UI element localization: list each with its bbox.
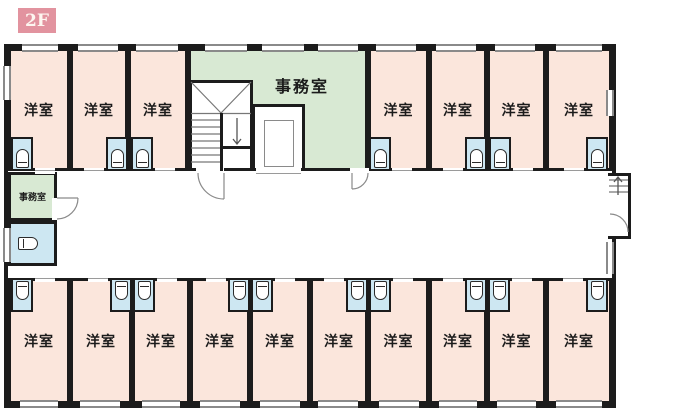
bathroom-unit [586, 278, 608, 312]
toilet-icon [493, 281, 506, 300]
room-label: 洋室 [443, 100, 473, 120]
bathroom-unit [131, 137, 153, 171]
window [3, 66, 11, 100]
toilet-icon [233, 281, 246, 300]
door-opening [35, 168, 55, 174]
door-opening [35, 276, 55, 282]
door-opening [84, 168, 104, 174]
door-opening [324, 276, 344, 282]
door-opening [196, 168, 224, 174]
staircase [189, 80, 253, 171]
toilet-icon [136, 149, 149, 168]
door-opening [275, 276, 295, 282]
window [436, 44, 476, 52]
room-label: 洋室 [384, 100, 414, 120]
door-opening [563, 276, 583, 282]
office-label: 事務室 [275, 73, 329, 97]
toilet-icon [494, 149, 507, 168]
bathroom-unit [11, 137, 33, 171]
window [260, 400, 300, 408]
toilet-icon [111, 149, 124, 168]
door-opening [392, 168, 412, 174]
window [556, 44, 602, 52]
door-opening [513, 168, 533, 174]
door-opening [512, 276, 532, 282]
floor-badge: 2F [18, 8, 56, 33]
toilet-icon [470, 149, 483, 168]
toilet-icon [256, 281, 269, 300]
bathroom-unit [586, 137, 608, 171]
window [20, 400, 58, 408]
window [318, 400, 358, 408]
room-label: 洋室 [384, 331, 414, 351]
door-opening [443, 168, 463, 174]
toilet-icon [138, 281, 151, 300]
window [495, 44, 535, 52]
bathroom-unit [133, 278, 155, 312]
window [318, 44, 358, 52]
toilet-icon [115, 281, 128, 300]
window [78, 44, 118, 52]
window [376, 44, 416, 52]
window [606, 90, 614, 116]
bathroom-unit [488, 278, 510, 312]
small-office-room: 事務室 [8, 172, 57, 221]
window [379, 400, 419, 408]
room-label: 洋室 [564, 100, 594, 120]
elevator [252, 104, 305, 171]
window [200, 400, 240, 408]
room-label: 洋室 [24, 331, 54, 351]
small-office-label: 事務室 [19, 190, 46, 203]
room-label: 洋室 [443, 331, 473, 351]
bathroom-unit [228, 278, 250, 312]
door-opening [443, 276, 463, 282]
bathroom-unit [110, 278, 132, 312]
door-opening [350, 168, 369, 174]
room-label: 洋室 [502, 100, 532, 120]
room-label: 洋室 [564, 331, 594, 351]
toilet-icon [591, 281, 604, 300]
bathroom-unit [369, 137, 391, 171]
door-opening [52, 198, 62, 220]
door-opening [606, 177, 616, 235]
room-label: 洋室 [24, 100, 54, 120]
window [439, 400, 477, 408]
window [606, 242, 614, 274]
floor-plan: 2F 洋室 洋室 洋室 事務室 洋室 洋室 洋室 洋室 洋室 洋室 洋室 洋室 … [0, 0, 700, 420]
bathroom-unit [369, 278, 391, 312]
window [262, 44, 304, 52]
bathroom-unit [489, 137, 511, 171]
room-label: 洋室 [205, 331, 235, 351]
door-opening [88, 276, 108, 282]
window [497, 400, 536, 408]
bathroom-unit [251, 278, 273, 312]
window [205, 44, 247, 52]
door-opening [393, 276, 413, 282]
room-label: 洋室 [324, 331, 354, 351]
elevator-door [256, 168, 301, 174]
door-opening [206, 276, 226, 282]
window [142, 400, 180, 408]
room-label: 洋室 [502, 331, 532, 351]
bathroom-unit [346, 278, 368, 312]
door-opening [564, 168, 584, 174]
toilet-icon [374, 281, 387, 300]
bathroom-unit [465, 278, 487, 312]
room-label: 洋室 [143, 100, 173, 120]
bathroom-unit [106, 137, 128, 171]
door-opening [155, 168, 175, 174]
door-swing-icon [57, 173, 628, 232]
toilet-icon [374, 149, 387, 168]
window [3, 228, 11, 262]
room-label: 洋室 [84, 100, 114, 120]
window [556, 400, 602, 408]
toilet-icon [16, 149, 29, 168]
room-label: 洋室 [146, 331, 176, 351]
toilet-icon [16, 281, 29, 300]
window [80, 400, 120, 408]
toilet-icon [591, 149, 604, 168]
elevator-cab [264, 120, 294, 167]
room-label: 洋室 [86, 331, 116, 351]
floor-badge-label: 2F [25, 11, 49, 31]
toilet-icon [470, 281, 483, 300]
window [22, 44, 58, 52]
bathroom-unit [11, 278, 33, 312]
toilet-icon [18, 237, 38, 250]
door-opening [157, 276, 177, 282]
toilet-icon [351, 281, 364, 300]
bathroom-unit [465, 137, 487, 171]
room-label: 洋室 [265, 331, 295, 351]
window [136, 44, 178, 52]
shared-toilet-room [8, 221, 57, 266]
